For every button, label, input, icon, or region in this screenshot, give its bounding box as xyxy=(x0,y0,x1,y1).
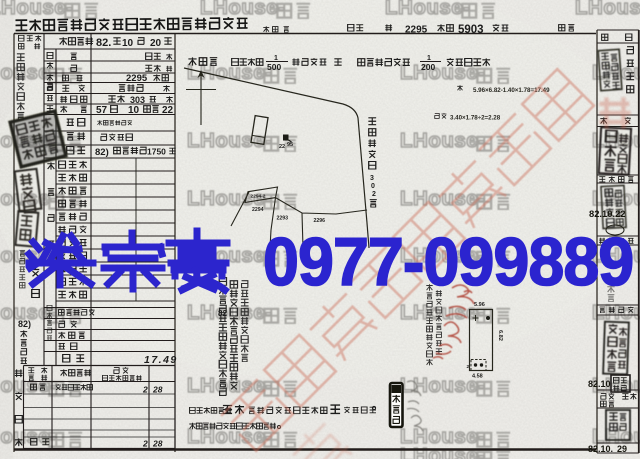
svg-text:3: 3 xyxy=(370,175,374,182)
svg-text:1: 1 xyxy=(274,55,278,62)
svg-text:LHouse-: LHouse- xyxy=(400,187,486,210)
svg-text:LHouse-: LHouse- xyxy=(400,444,486,459)
svg-text:LHouse-: LHouse- xyxy=(187,129,273,152)
svg-text:22: 22 xyxy=(162,105,174,116)
svg-text:10: 10 xyxy=(128,105,140,116)
svg-text:82.10.: 82.10. xyxy=(588,444,613,454)
svg-text:1750: 1750 xyxy=(147,147,166,157)
svg-text:82: 82 xyxy=(218,309,227,318)
svg-text:28: 28 xyxy=(152,439,163,449)
svg-text:500: 500 xyxy=(267,62,281,72)
svg-text:2: 2 xyxy=(142,385,148,395)
svg-text:200: 200 xyxy=(421,62,435,72)
svg-text:LHouse-: LHouse- xyxy=(575,0,640,19)
svg-text:82.10: 82.10 xyxy=(588,379,611,389)
svg-text:1: 1 xyxy=(427,55,431,62)
svg-text:57: 57 xyxy=(96,105,108,116)
svg-text:82): 82) xyxy=(18,319,31,329)
svg-text:LHouse-: LHouse- xyxy=(0,0,74,19)
svg-text:2: 2 xyxy=(467,364,470,370)
svg-text:2296: 2296 xyxy=(314,218,326,224)
svg-text:6.82: 6.82 xyxy=(497,330,503,341)
svg-text:95: 95 xyxy=(287,142,293,148)
svg-text:2293: 2293 xyxy=(277,216,289,222)
svg-text:2: 2 xyxy=(142,439,148,449)
svg-text:82.10.22: 82.10.22 xyxy=(589,208,626,219)
svg-text:0977-099889: 0977-099889 xyxy=(263,225,633,301)
svg-text:82.: 82. xyxy=(96,37,111,49)
svg-text:LHouse-: LHouse- xyxy=(385,0,471,19)
svg-text:4.58: 4.58 xyxy=(472,374,483,380)
svg-text:20: 20 xyxy=(150,38,162,49)
svg-text:303: 303 xyxy=(130,95,145,105)
svg-text:2: 2 xyxy=(372,191,376,198)
svg-text:0: 0 xyxy=(371,183,375,190)
svg-text:82): 82) xyxy=(95,147,109,158)
svg-text:3.40×1.78÷2=2.28: 3.40×1.78÷2=2.28 xyxy=(450,115,501,122)
svg-text:28: 28 xyxy=(152,385,163,395)
svg-text:5.96: 5.96 xyxy=(474,302,485,308)
svg-text:2295: 2295 xyxy=(126,73,148,84)
svg-text:10: 10 xyxy=(122,38,134,49)
svg-text:2294-2: 2294-2 xyxy=(251,194,266,200)
svg-text:17.49: 17.49 xyxy=(144,354,178,366)
svg-text:LHouse-: LHouse- xyxy=(400,301,486,324)
svg-text:29: 29 xyxy=(617,444,627,454)
svg-text:2294: 2294 xyxy=(252,207,264,213)
svg-text:LHouse-: LHouse- xyxy=(200,0,286,19)
svg-text:22: 22 xyxy=(279,144,285,150)
svg-text:LHouse-: LHouse- xyxy=(400,61,486,84)
svg-text:LHouse-: LHouse- xyxy=(400,129,486,152)
